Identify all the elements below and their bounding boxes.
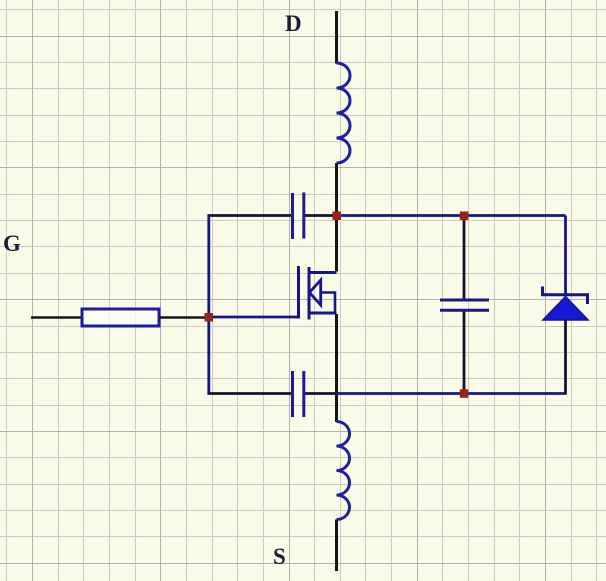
- svg-text:S: S: [273, 544, 286, 569]
- svg-text:G: G: [3, 231, 21, 256]
- svg-text:D: D: [285, 11, 302, 36]
